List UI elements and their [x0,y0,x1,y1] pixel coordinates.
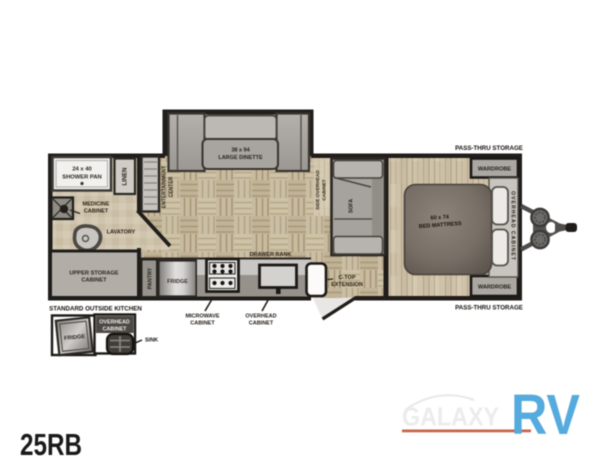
svg-text:LAVATORY: LAVATORY [107,230,136,236]
svg-text:OVERHEAD CABINET: OVERHEAD CABINET [510,191,516,261]
svg-text:GALAXY: GALAXY [402,402,499,432]
svg-text:CABINET: CABINET [249,321,274,327]
svg-text:LINEN: LINEN [123,168,129,186]
svg-text:LARGE DINETTE: LARGE DINETTE [218,155,263,161]
svg-text:PASS-THRU STORAGE: PASS-THRU STORAGE [455,145,523,152]
svg-text:MEDICINE: MEDICINE [83,202,110,208]
svg-text:24 x 40: 24 x 40 [72,167,91,173]
svg-text:WARDROBE: WARDROBE [478,285,512,291]
svg-text:DRAWER BANK: DRAWER BANK [250,252,292,258]
svg-text:STANDARD OUTSIDE KITCHEN: STANDARD OUTSIDE KITCHEN [49,306,142,313]
svg-text:CABINET: CABINET [81,278,107,284]
svg-text:OVERHEAD: OVERHEAD [245,314,276,320]
svg-text:OVERHEAD: OVERHEAD [99,320,130,326]
svg-text:CABINET: CABINET [190,321,215,327]
svg-text:SIDE OVERHEAD: SIDE OVERHEAD [315,170,321,210]
svg-text:EXTENSION: EXTENSION [331,282,363,288]
svg-text:CENTER: CENTER [169,176,175,197]
svg-text:UPPER STORAGE: UPPER STORAGE [69,271,118,277]
svg-text:WARDROBE: WARDROBE [478,167,512,173]
svg-text:CABINET: CABINET [103,327,128,333]
svg-text:CABINET: CABINET [84,209,109,215]
svg-text:ENTERTAINMENT: ENTERTAINMENT [162,166,168,208]
svg-text:25RB: 25RB [20,428,82,460]
svg-text:PASS-THRU STORAGE: PASS-THRU STORAGE [455,305,523,312]
svg-text:MICROWAVE: MICROWAVE [185,314,219,320]
svg-text:FRIDGE: FRIDGE [167,279,188,285]
svg-text:C-TOP: C-TOP [338,275,355,281]
svg-text:SHOWER PAN: SHOWER PAN [62,175,102,181]
svg-text:38 x 94: 38 x 94 [231,148,250,154]
svg-text:RV: RV [511,383,580,447]
svg-text:SINK: SINK [145,338,158,344]
svg-text:PANTRY: PANTRY [148,267,154,289]
svg-text:CABINET: CABINET [322,179,328,200]
svg-text:SOFA: SOFA [349,199,355,213]
